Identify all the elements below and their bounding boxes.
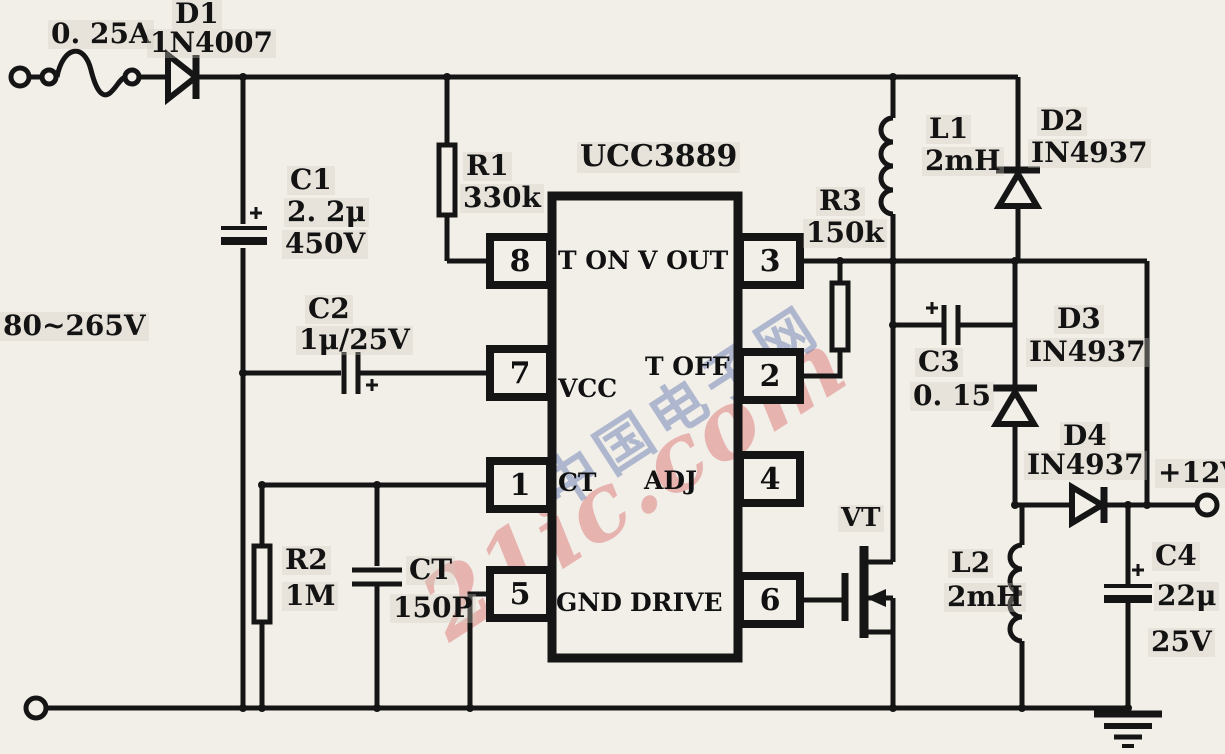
c3-value-label: 0. 15	[910, 382, 994, 411]
l2-ref-label: L2	[948, 549, 993, 578]
c1-voltage-label: 450V	[282, 230, 368, 259]
r2-resistor-symbol	[254, 546, 270, 622]
ic-name-label: UCC3889	[577, 142, 740, 173]
c2-ref-label: C2	[305, 295, 353, 324]
d3-value-label: IN4937	[1026, 338, 1149, 367]
pin-toff-name: T OFF	[645, 352, 730, 381]
r3-value-label: 150k	[803, 219, 887, 248]
r1-value-label: 330k	[460, 184, 544, 213]
r2-ref-label: R2	[282, 546, 331, 575]
c4-ref-label: C4	[1152, 542, 1200, 571]
d2-ref-label: D2	[1037, 107, 1087, 136]
pin-drive-name: DRIVE	[630, 588, 723, 617]
pin6-number: 6	[740, 583, 800, 618]
output-terminal-icon	[1197, 495, 1217, 515]
input-voltage-label: 80~265V	[0, 312, 149, 341]
d1-diode-symbol	[168, 55, 196, 99]
pin-ct-name: CT	[558, 468, 597, 497]
pin3-number: 3	[740, 244, 800, 279]
ic-pin-boxes	[490, 237, 800, 624]
d4-ref-label: D4	[1060, 422, 1110, 451]
ct-ref-label: CT	[406, 556, 455, 585]
d1-ref-label: D1	[172, 0, 222, 29]
ground-icon	[1094, 714, 1162, 746]
d1-value-label: 1N4007	[147, 29, 276, 58]
r1-resistor-symbol	[439, 145, 455, 215]
pin8-number: 8	[490, 244, 550, 279]
pin5-number: 5	[490, 577, 550, 612]
d3-ref-label: D3	[1054, 305, 1104, 334]
d4-diode-symbol	[1072, 487, 1104, 523]
c4-voltage-label: 25V	[1148, 628, 1215, 657]
d2-value-label: IN4937	[1028, 139, 1151, 168]
c2-value-label: 1μ/25V	[296, 326, 413, 355]
l2-value-label: 2mH	[944, 583, 1026, 612]
ct-value-label: 150P	[390, 594, 476, 623]
c4-value-label: 22μ	[1154, 582, 1219, 611]
c3-ref-label: C3	[915, 348, 963, 377]
l1-value-label: 2mH	[922, 147, 1004, 176]
pin2-number: 2	[740, 359, 800, 394]
d3-diode-symbol	[993, 388, 1037, 424]
vt-ref-label: VT	[838, 505, 884, 532]
r2-value-label: 1M	[282, 582, 338, 611]
fuse-symbol	[57, 51, 125, 95]
c1-ref-label: C1	[287, 166, 335, 195]
l1-ref-label: L1	[926, 115, 971, 144]
output-voltage-label: +12V	[1155, 459, 1225, 488]
r3-ref-label: R3	[816, 187, 865, 216]
pin-gnd-name: GND	[556, 588, 622, 617]
fuse-rating-label: 0. 25A	[48, 20, 154, 49]
schematic-canvas: 21ic.com 中国电子网	[0, 0, 1225, 754]
r3-resistor-symbol	[832, 283, 848, 350]
pin1-number: 1	[490, 468, 550, 503]
pin-vout-name: V OUT	[638, 246, 728, 275]
pin-adj-name: ADJ	[644, 466, 697, 495]
pin7-number: 7	[490, 356, 550, 391]
r1-ref-label: R1	[463, 152, 512, 181]
d4-value-label: IN4937	[1024, 451, 1147, 480]
input-terminal-icon	[11, 68, 139, 718]
c1-value-label: 2. 2μ	[284, 198, 369, 227]
pin-vcc-name: VCC	[558, 374, 617, 403]
pin4-number: 4	[740, 462, 800, 497]
l1-inductor-symbol	[881, 118, 893, 214]
ct-capacitor-symbol	[352, 570, 402, 584]
pin-ton-name: T ON	[558, 246, 630, 275]
